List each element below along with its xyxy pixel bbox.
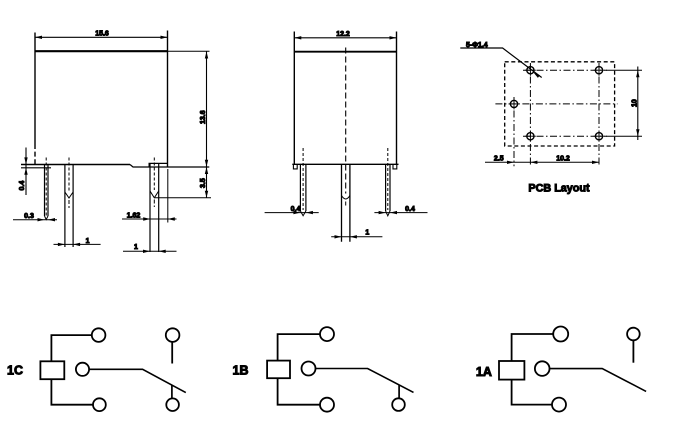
svg-text:0.4: 0.4: [291, 206, 301, 213]
svg-text:0.4: 0.4: [405, 206, 415, 213]
svg-text:1: 1: [134, 244, 138, 251]
svg-text:15.6: 15.6: [95, 30, 109, 37]
svg-text:1A: 1A: [476, 365, 492, 379]
svg-text:13.6: 13.6: [200, 110, 207, 124]
svg-text:1B: 1B: [233, 364, 249, 378]
svg-text:2.5: 2.5: [494, 156, 504, 163]
svg-text:0.4: 0.4: [19, 181, 26, 191]
svg-text:3.5: 3.5: [200, 178, 207, 188]
svg-text:0.3: 0.3: [24, 213, 34, 220]
svg-text:1: 1: [86, 238, 90, 245]
svg-text:1C: 1C: [7, 364, 23, 378]
svg-text:PCB Layout: PCB Layout: [528, 183, 590, 195]
svg-text:10: 10: [632, 99, 639, 107]
svg-text:1: 1: [365, 230, 369, 237]
svg-text:1.62: 1.62: [127, 212, 141, 219]
svg-text:12.2: 12.2: [336, 31, 350, 38]
svg-text:10.2: 10.2: [556, 156, 570, 163]
